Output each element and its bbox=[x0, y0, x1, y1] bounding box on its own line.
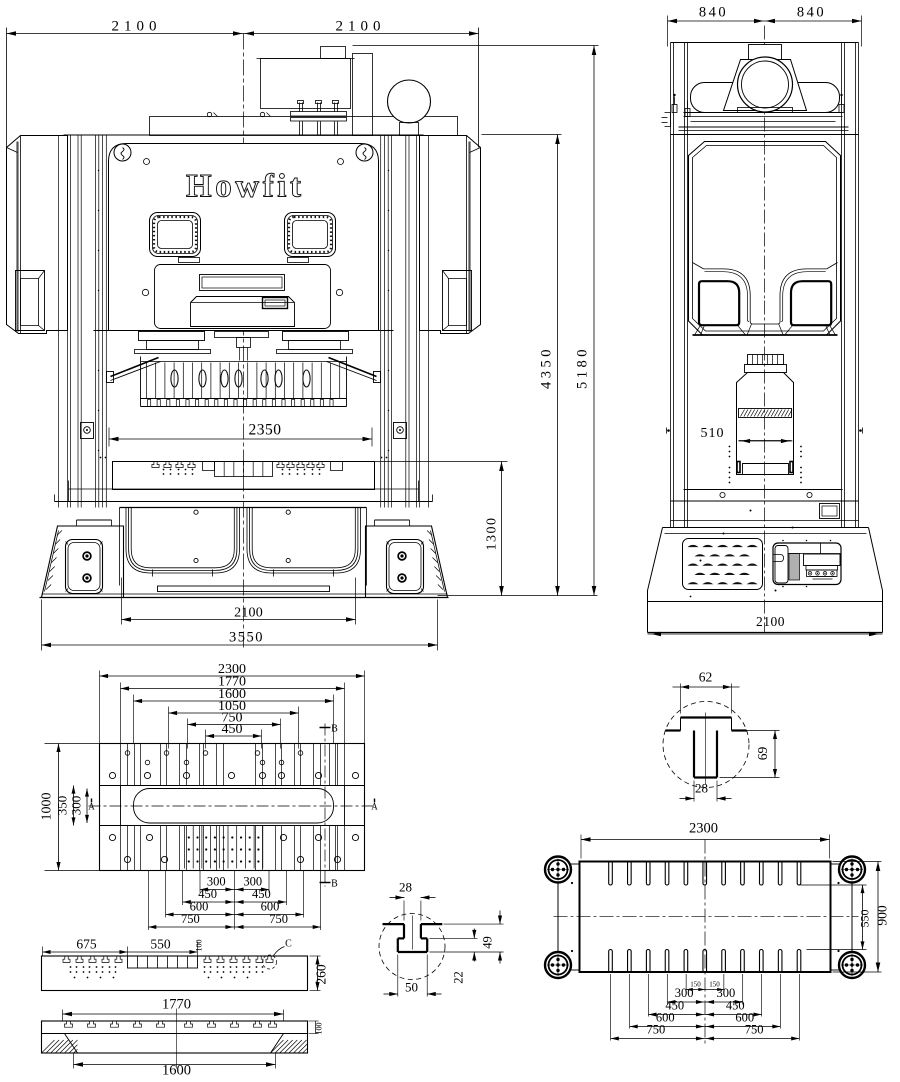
svg-text:5180: 5180 bbox=[575, 346, 591, 389]
svg-text:675: 675 bbox=[76, 937, 97, 952]
svg-text:3550: 3550 bbox=[229, 630, 264, 646]
svg-text:4350: 4350 bbox=[539, 346, 555, 389]
svg-text:750: 750 bbox=[181, 912, 200, 926]
svg-text:1770: 1770 bbox=[162, 997, 191, 1013]
svg-text:350: 350 bbox=[55, 796, 70, 816]
svg-text:260: 260 bbox=[314, 964, 329, 985]
svg-text:2100: 2100 bbox=[112, 19, 162, 35]
svg-text:2300: 2300 bbox=[689, 821, 718, 837]
svg-text:1300: 1300 bbox=[485, 517, 500, 551]
svg-text:C: C bbox=[285, 939, 292, 950]
svg-text:750: 750 bbox=[269, 912, 288, 926]
svg-text:100: 100 bbox=[195, 940, 204, 952]
svg-text:49: 49 bbox=[481, 936, 495, 949]
svg-text:Howfit: Howfit bbox=[186, 169, 301, 205]
svg-text:450: 450 bbox=[222, 722, 243, 737]
svg-text:2100: 2100 bbox=[756, 614, 785, 629]
svg-text:2100: 2100 bbox=[336, 19, 386, 35]
svg-text:750: 750 bbox=[745, 1023, 764, 1037]
svg-text:69: 69 bbox=[755, 747, 770, 761]
svg-text:510: 510 bbox=[701, 426, 725, 441]
svg-text:1000: 1000 bbox=[40, 793, 55, 821]
svg-text:62: 62 bbox=[699, 670, 713, 685]
svg-text:750: 750 bbox=[647, 1023, 666, 1037]
svg-text:A: A bbox=[88, 802, 95, 812]
svg-text:900: 900 bbox=[875, 905, 890, 926]
svg-text:B: B bbox=[331, 724, 338, 735]
svg-text:2350: 2350 bbox=[249, 422, 282, 439]
svg-text:50: 50 bbox=[405, 980, 418, 995]
svg-text:840: 840 bbox=[797, 5, 826, 21]
svg-text:300: 300 bbox=[69, 796, 84, 816]
svg-text:550: 550 bbox=[858, 910, 872, 928]
svg-text:28: 28 bbox=[695, 781, 708, 796]
svg-text:840: 840 bbox=[699, 5, 728, 21]
svg-text:28: 28 bbox=[399, 880, 412, 895]
svg-text:550: 550 bbox=[150, 937, 171, 952]
svg-text:2100: 2100 bbox=[234, 606, 263, 621]
svg-text:B: B bbox=[331, 879, 338, 890]
svg-text:22: 22 bbox=[452, 971, 466, 984]
svg-text:A: A bbox=[371, 802, 378, 812]
